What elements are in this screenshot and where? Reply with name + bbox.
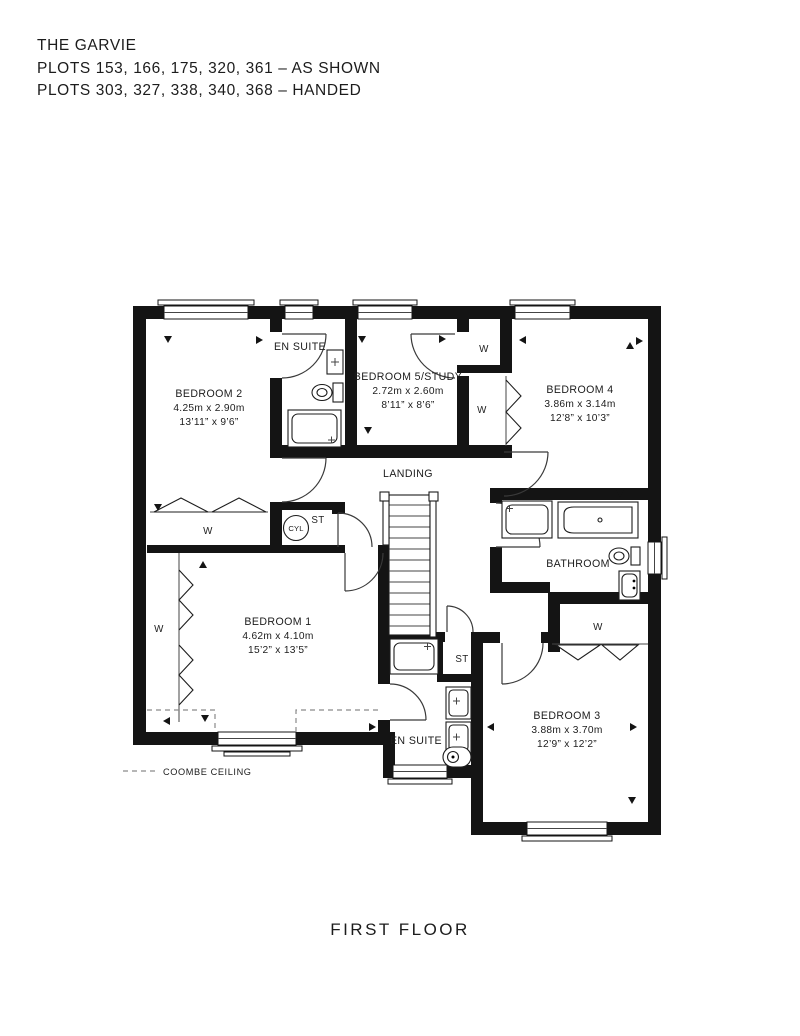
store-label: ST — [311, 515, 324, 526]
wardrobe-label: W — [154, 624, 164, 635]
bathroom-basin-icon — [619, 571, 640, 600]
arrow-icon — [364, 427, 372, 434]
bifold-doors-icon — [552, 644, 648, 660]
room-name: EN SUITE — [274, 341, 326, 353]
bathroom-window — [648, 537, 667, 579]
wardrobe-label: W — [477, 405, 487, 416]
store-door — [447, 606, 473, 632]
bedroom1-window — [212, 732, 302, 756]
bathroom-toilet-icon — [609, 547, 640, 565]
bedroom2-door — [282, 458, 326, 502]
bedroom4-label: BEDROOM 4 3.86m x 3.14m 12’8” x 10’3” — [544, 384, 615, 424]
staircase — [380, 492, 438, 637]
room-name: BEDROOM 5/STUDY — [354, 371, 462, 383]
room-dim-imperial: 12’9” x 12’2” — [537, 739, 597, 750]
coombe-ceiling-lines — [147, 710, 380, 732]
room-name: EN SUITE — [390, 735, 442, 747]
bedroom3-door — [502, 643, 543, 684]
ensuite-bottom-label: EN SUITE — [390, 735, 442, 747]
ensuite-top-basin-icon — [327, 350, 343, 374]
legend: COOMBE CEILING — [123, 767, 252, 777]
ensuite-top-window — [280, 300, 318, 319]
newel-post-icon — [429, 492, 438, 501]
room-name: LANDING — [383, 468, 433, 480]
bedroom1-label: BEDROOM 1 4.62m x 4.10m 15’2” x 13’5” — [242, 616, 313, 656]
room-name: BEDROOM 2 — [175, 388, 242, 400]
sliding-doors-icon — [179, 553, 193, 722]
cylinder-store-door — [338, 513, 372, 547]
stair-rail-right — [430, 495, 436, 637]
ensuite-top-shower-icon — [288, 410, 341, 447]
ensuite-bottom-door — [390, 684, 426, 720]
stair-rail-left — [383, 495, 389, 545]
arrow-icon — [487, 723, 494, 731]
room-dim-metric: 2.72m x 2.60m — [372, 386, 443, 397]
arrow-icon — [201, 715, 209, 722]
bedroom5-label: BEDROOM 5/STUDY 2.72m x 2.60m 8’11” x 8’… — [354, 371, 462, 411]
wardrobe-label: W — [479, 344, 489, 355]
room-name: BEDROOM 4 — [546, 384, 613, 396]
room-name: BATHROOM — [546, 558, 610, 570]
page-title: THE GARVIE — [37, 37, 137, 54]
room-dim-imperial: 15’2” x 13’5” — [248, 645, 308, 656]
arrow-icon — [164, 336, 172, 343]
plots-as-shown: PLOTS 153, 166, 175, 320, 361 – AS SHOWN — [37, 60, 381, 77]
room-dim-metric: 3.86m x 3.14m — [544, 399, 615, 410]
sliding-doors-icon — [506, 376, 521, 446]
bathroom-bath-icon — [558, 502, 638, 538]
bedroom1-door — [345, 553, 383, 591]
arrow-icon — [439, 335, 446, 343]
store-label: ST — [455, 654, 468, 665]
room-dim-metric: 3.88m x 3.70m — [531, 725, 602, 736]
ensuite-bottom-window — [388, 765, 452, 784]
header: THE GARVIE PLOTS 153, 166, 175, 320, 361… — [37, 37, 381, 99]
arrow-icon — [199, 561, 207, 568]
arrow-icon — [636, 337, 643, 345]
ensuite-bottom-toilet-icon — [443, 747, 471, 767]
plots-handed: PLOTS 303, 327, 338, 340, 368 – HANDED — [37, 82, 361, 99]
bedroom3-window — [522, 822, 612, 841]
room-dim-metric: 4.25m x 2.90m — [173, 403, 244, 414]
arrow-icon — [630, 723, 637, 731]
room-dim-imperial: 8’11” x 8’6” — [381, 400, 435, 411]
floor-title: FIRST FLOOR — [330, 920, 470, 939]
newel-post-icon — [380, 492, 389, 501]
floorplan-svg: THE GARVIE PLOTS 153, 166, 175, 320, 361… — [0, 0, 800, 1036]
room-dim-imperial: 12’8” x 10’3” — [550, 413, 610, 424]
room-name: BEDROOM 1 — [244, 616, 311, 628]
ensuite-top-toilet-icon — [312, 383, 343, 402]
room-name: BEDROOM 3 — [533, 710, 600, 722]
bedroom2-label: BEDROOM 2 4.25m x 2.90m 13’11” x 9’6” — [173, 388, 244, 428]
arrow-icon — [519, 336, 526, 344]
arrow-icon — [358, 336, 366, 343]
room-dim-imperial: 13’11” x 9’6” — [179, 417, 239, 428]
ensuite-bottom-shower-icon — [390, 639, 438, 674]
arrow-icon — [628, 797, 636, 804]
bedroom3-label: BEDROOM 3 3.88m x 3.70m 12’9” x 12’2” — [531, 710, 602, 750]
bedroom4-window — [510, 300, 575, 319]
bedroom5-window — [353, 300, 417, 319]
ensuite-top-label: EN SUITE — [274, 341, 326, 353]
cylinder-label: CYL — [288, 524, 303, 533]
bifold-doors-icon — [150, 498, 268, 512]
arrow-icon — [369, 723, 376, 731]
wardrobe-label: W — [203, 526, 213, 537]
bathroom-label: BATHROOM — [546, 558, 610, 570]
bedroom2-window — [158, 300, 254, 319]
wardrobe-label: W — [593, 622, 603, 633]
room-dim-metric: 4.62m x 4.10m — [242, 631, 313, 642]
arrow-icon — [626, 342, 634, 349]
bathroom-shower-icon — [502, 501, 552, 538]
floorplan-page: THE GARVIE PLOTS 153, 166, 175, 320, 361… — [0, 0, 800, 1036]
arrow-icon — [163, 717, 170, 725]
landing-label: LANDING — [383, 468, 433, 480]
coombe-legend-label: COOMBE CEILING — [163, 767, 252, 777]
arrow-icon — [256, 336, 263, 344]
ensuite-bottom-basin-icon — [446, 687, 471, 719]
